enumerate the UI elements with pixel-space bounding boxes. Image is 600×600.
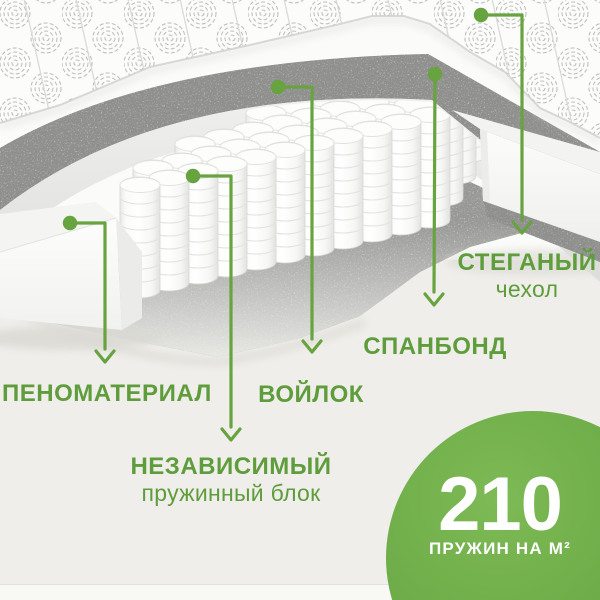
label-springs: НЕЗАВИСИМЫЙ пружинный блок [116, 454, 346, 507]
springs-count-caption: ПРУЖИН НА М² [392, 539, 600, 559]
label-spunbond-title: СПАНБОНД [355, 334, 515, 361]
label-felt-title: ВОЙЛОК [241, 382, 381, 409]
label-cover-subtitle: чехол [447, 277, 600, 303]
label-foam-title: ПЕНОМАТЕРИАЛ [2, 381, 210, 408]
label-springs-title: НЕЗАВИСИМЫЙ [116, 454, 346, 481]
label-cover: СТЕГАНЫЙ чехол [447, 250, 600, 303]
label-spunbond: СПАНБОНД [355, 334, 515, 361]
label-foam: ПЕНОМАТЕРИАЛ [2, 381, 210, 408]
label-cover-title: СТЕГАНЫЙ [447, 250, 600, 277]
mattress-infographic: ПЕНОМАТЕРИАЛ ВОЙЛОК СПАНБОНД НЕЗАВИСИМЫЙ… [0, 0, 600, 600]
label-felt: ВОЙЛОК [241, 382, 381, 409]
springs-count-value: 210 [402, 467, 598, 543]
label-springs-subtitle: пружинный блок [116, 481, 346, 507]
